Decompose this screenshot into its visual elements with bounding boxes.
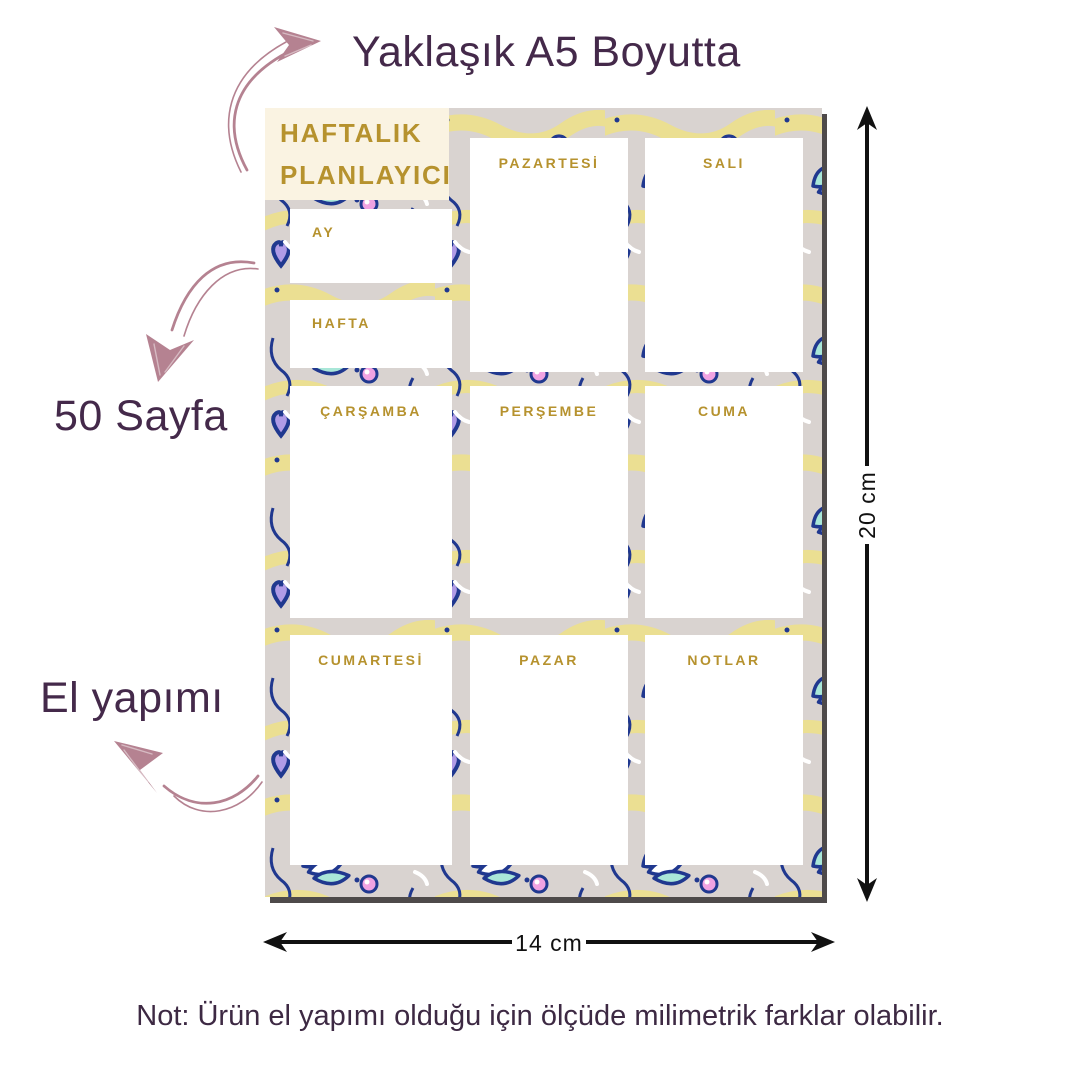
weekly-planner-page: HAFTALIK PLANLAYICI AY HAFTA PAZARTESİ S… — [265, 108, 822, 897]
tuesday-cell: SALI — [645, 138, 803, 372]
month-cell: AY — [290, 209, 452, 283]
page-count-caption: 50 Sayfa — [54, 392, 228, 441]
size-caption: Yaklaşık A5 Boyutta — [352, 28, 741, 77]
thursday-label: PERŞEMBE — [470, 386, 628, 419]
saturday-label: CUMARTESİ — [290, 635, 452, 668]
month-label: AY — [290, 209, 452, 240]
monday-label: PAZARTESİ — [470, 138, 628, 171]
saturday-cell: CUMARTESİ — [290, 635, 452, 865]
wednesday-label: ÇARŞAMBA — [290, 386, 452, 419]
page-count-sketch-arrow-icon — [146, 262, 258, 382]
wednesday-cell: ÇARŞAMBA — [290, 386, 452, 618]
handmade-caption: El yapımı — [40, 674, 224, 723]
week-label: HAFTA — [290, 300, 452, 331]
sunday-label: PAZAR — [470, 635, 628, 668]
height-dimension-arrow-icon: 20 cm — [847, 104, 887, 904]
notes-cell: NOTLAR — [645, 635, 803, 865]
planner-title-card: HAFTALIK PLANLAYICI — [265, 108, 449, 200]
monday-cell: PAZARTESİ — [470, 138, 628, 372]
planner-title-line1: HAFTALIK — [280, 112, 449, 154]
notes-label: NOTLAR — [645, 635, 803, 668]
thursday-cell: PERŞEMBE — [470, 386, 628, 618]
friday-cell: CUMA — [645, 386, 803, 618]
width-dimension-arrow-icon: 14 cm — [260, 922, 838, 962]
handmade-tolerance-note: Not: Ürün el yapımı olduğu için ölçüde m… — [0, 1000, 1080, 1033]
week-cell: HAFTA — [290, 300, 452, 368]
sunday-cell: PAZAR — [470, 635, 628, 865]
width-dimension-label: 14 cm — [515, 930, 583, 956]
tuesday-label: SALI — [645, 138, 803, 171]
planner-title-line2: PLANLAYICI — [280, 154, 449, 196]
friday-label: CUMA — [645, 386, 803, 419]
handmade-sketch-arrow-icon — [114, 741, 262, 812]
height-dimension-label: 20 cm — [854, 471, 880, 539]
